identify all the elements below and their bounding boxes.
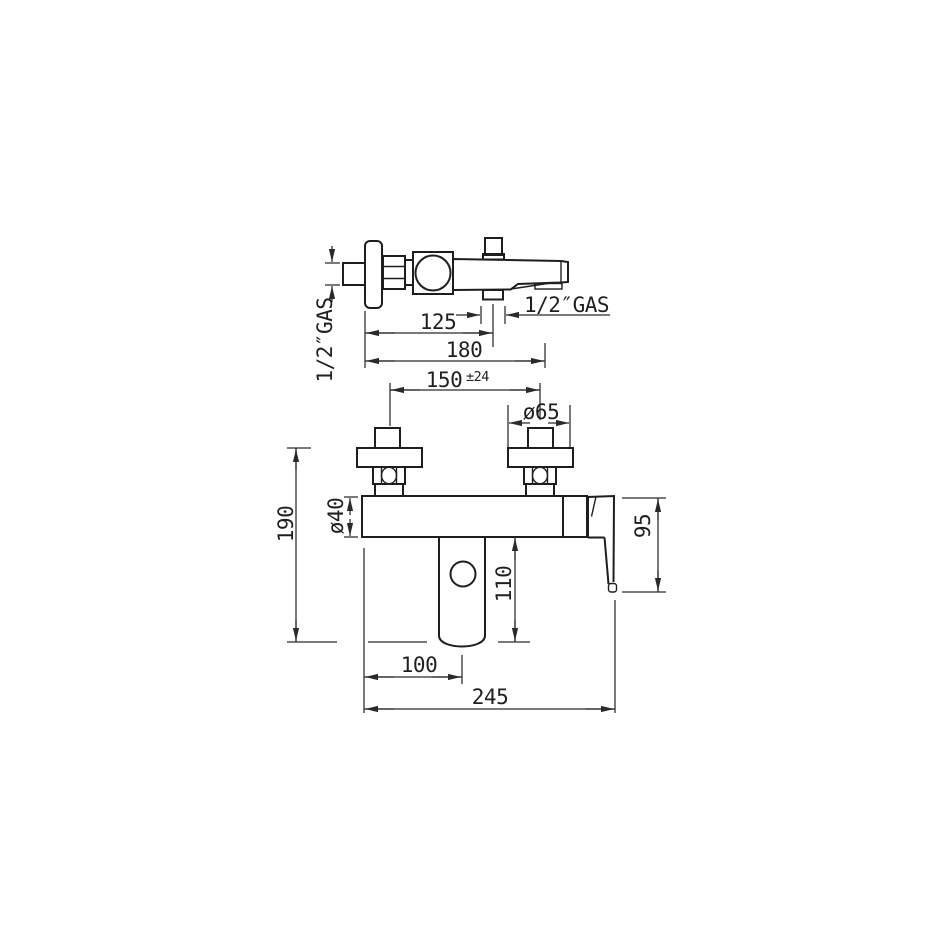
dim-190: 190 [274,448,311,642]
dim-gas-right-label: 1/2″GAS [524,293,609,317]
dim-180-label: 180 [446,338,482,362]
dim-150: 150 ±24 [390,368,540,426]
dim-gas-right: 1/2″GAS [456,293,610,324]
top-upper-tab [483,238,504,260]
top-connector-ring [405,260,413,285]
dim-95-label: 95 [631,514,655,538]
top-cartridge-housing [413,252,453,294]
dim-100-label: 100 [401,653,437,677]
top-wall-flange [365,241,382,308]
dimension-annotations: 1/2″GAS 1/2″GAS 125 180 [274,246,666,713]
dim-100: 100 [364,548,462,713]
front-view [357,428,617,647]
technical-drawing-canvas: 1/2″GAS 1/2″GAS 125 180 [0,0,950,950]
dim-gas-left: 1/2″GAS [313,246,340,383]
top-spout-body [453,259,568,290]
top-cartridge-circle [416,256,451,291]
front-body-bar [362,496,563,537]
front-left-connector [357,428,422,496]
dim-65-label: ø65 [523,400,559,424]
dim-40: ø40 [324,497,358,537]
dim-110: 110 [492,537,516,642]
dim-180: 180 [365,338,545,368]
dim-245-label: 245 [472,685,508,709]
dim-150-tolerance-label: ±24 [466,369,489,385]
front-lever-handle [588,496,617,592]
dim-65: ø65 [508,400,570,447]
front-spout [439,537,485,647]
dim-95: 95 [622,498,666,592]
top-wall-stub [343,263,365,285]
dim-150-label: 150 [426,368,462,392]
dim-110-label: 110 [492,566,516,602]
drawing-svg: 1/2″GAS 1/2″GAS 125 180 [0,0,950,950]
top-outlet-tab [483,290,503,300]
front-cartridge-section [563,496,587,537]
dim-190-label: 190 [274,506,298,542]
dim-40-label: ø40 [324,498,348,534]
front-diverter-circle [451,562,476,587]
top-hex-nut [383,256,405,289]
dim-gas-left-label: 1/2″GAS [313,297,337,382]
dim-125-label: 125 [420,310,456,334]
front-right-connector [508,428,573,496]
